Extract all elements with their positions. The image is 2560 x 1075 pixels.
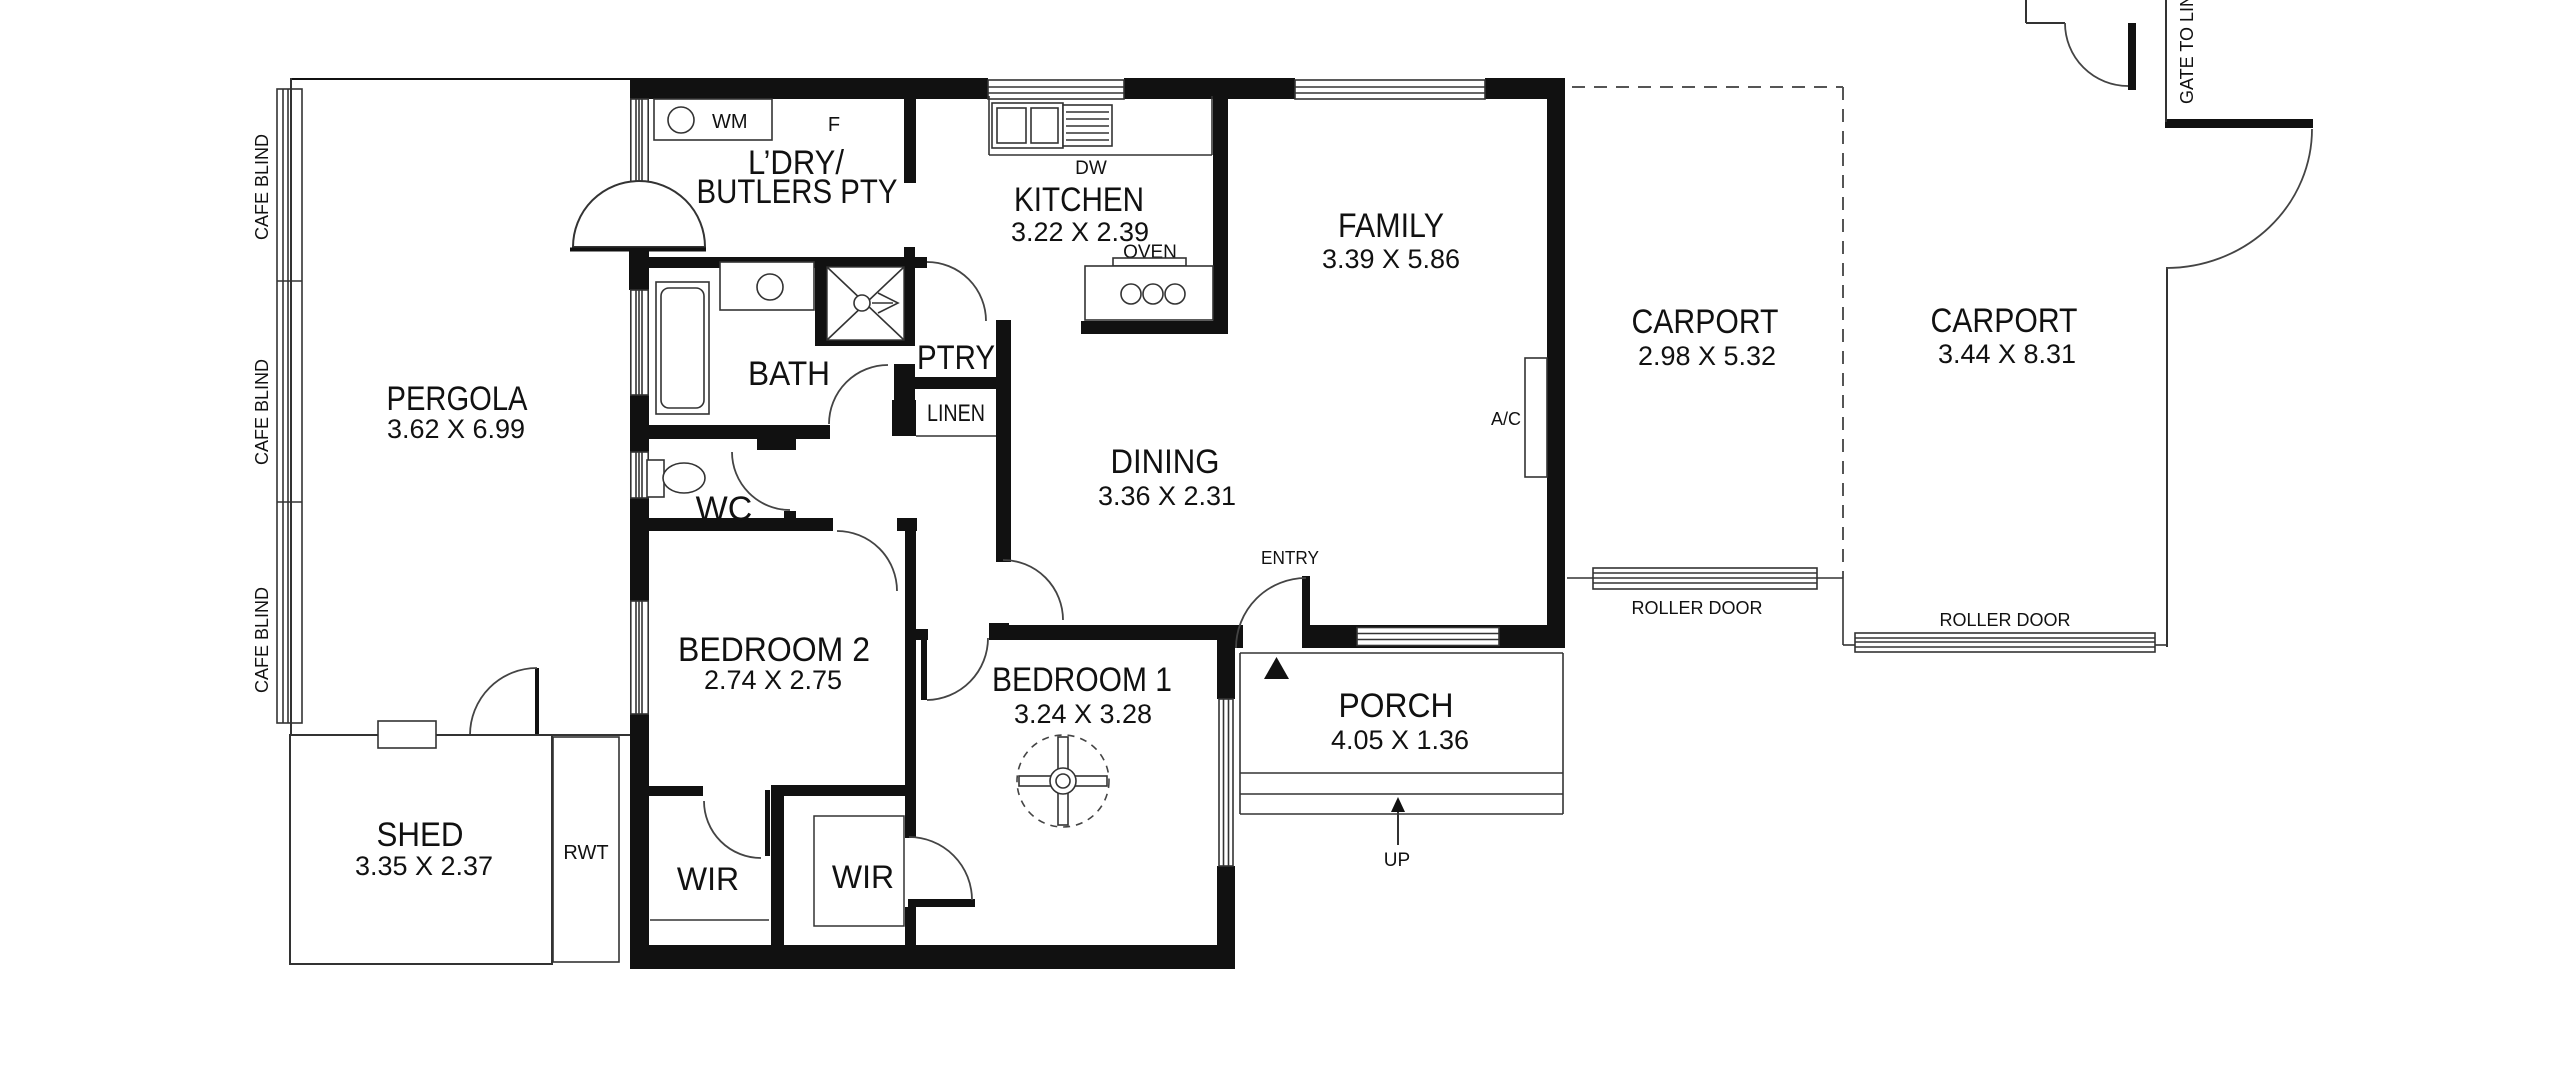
svg-text:KITCHEN: KITCHEN	[1014, 181, 1144, 219]
svg-text:WIR: WIR	[832, 859, 894, 895]
svg-text:BATH: BATH	[748, 355, 830, 393]
svg-text:F: F	[828, 114, 840, 136]
svg-text:ROLLER DOOR: ROLLER DOOR	[1939, 610, 2070, 630]
svg-text:BUTLERS PTY: BUTLERS PTY	[697, 173, 898, 211]
svg-text:DINING: DINING	[1111, 443, 1220, 481]
svg-text:A/C: A/C	[1491, 409, 1521, 429]
svg-text:CAFE BLIND: CAFE BLIND	[252, 587, 272, 693]
svg-text:LINEN: LINEN	[927, 400, 985, 427]
svg-text:3.35 X 2.37: 3.35 X 2.37	[355, 851, 493, 881]
svg-text:UP: UP	[1384, 850, 1410, 871]
svg-text:PTRY: PTRY	[917, 339, 995, 377]
svg-text:ROLLER DOOR: ROLLER DOOR	[1631, 598, 1762, 618]
svg-text:DW: DW	[1075, 158, 1107, 179]
svg-text:3.24 X 3.28: 3.24 X 3.28	[1014, 699, 1152, 729]
svg-text:PERGOLA: PERGOLA	[387, 380, 528, 418]
svg-text:RWT: RWT	[563, 842, 608, 864]
svg-text:CAFE BLIND: CAFE BLIND	[252, 359, 272, 465]
svg-text:CARPORT: CARPORT	[1931, 302, 2078, 340]
svg-text:CAFE BLIND: CAFE BLIND	[252, 134, 272, 240]
svg-text:BEDROOM 1: BEDROOM 1	[992, 661, 1172, 699]
svg-text:3.36 X 2.31: 3.36 X 2.31	[1098, 481, 1236, 511]
svg-text:FAMILY: FAMILY	[1338, 207, 1444, 245]
svg-text:WIR: WIR	[677, 861, 739, 897]
svg-text:WM: WM	[712, 111, 748, 133]
svg-text:3.39 X 5.86: 3.39 X 5.86	[1322, 244, 1460, 274]
svg-text:GATE TO LINE: GATE TO LINE	[2177, 0, 2197, 104]
svg-text:SHED: SHED	[377, 816, 464, 854]
svg-text:ENTRY: ENTRY	[1261, 548, 1319, 568]
svg-text:WC: WC	[696, 490, 753, 528]
svg-text:2.74 X 2.75: 2.74 X 2.75	[704, 665, 842, 695]
svg-text:PORCH: PORCH	[1339, 687, 1454, 725]
svg-text:2.98 X 5.32: 2.98 X 5.32	[1638, 341, 1776, 371]
svg-text:3.62 X 6.99: 3.62 X 6.99	[387, 414, 525, 444]
svg-text:3.44 X 8.31: 3.44 X 8.31	[1938, 339, 2076, 369]
svg-text:CARPORT: CARPORT	[1632, 303, 1779, 341]
svg-text:BEDROOM 2: BEDROOM 2	[678, 631, 870, 669]
svg-text:4.05 X 1.36: 4.05 X 1.36	[1331, 725, 1469, 755]
